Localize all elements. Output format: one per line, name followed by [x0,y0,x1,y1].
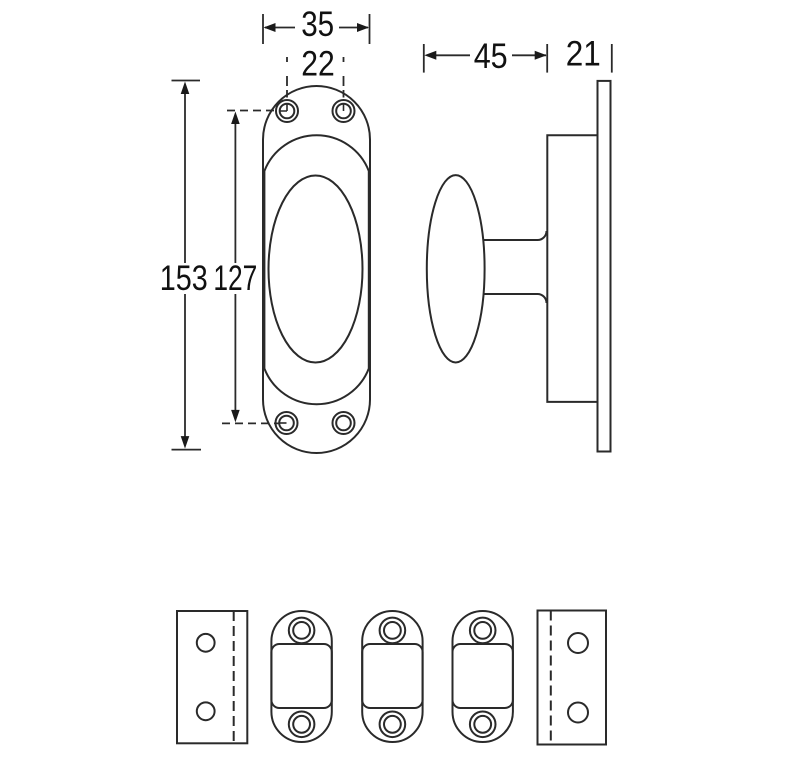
svg-text:153: 153 [160,258,208,298]
svg-text:127: 127 [213,258,257,298]
svg-text:35: 35 [301,4,334,44]
svg-text:21: 21 [566,34,601,74]
svg-text:45: 45 [474,36,508,76]
svg-text:22: 22 [301,44,335,84]
